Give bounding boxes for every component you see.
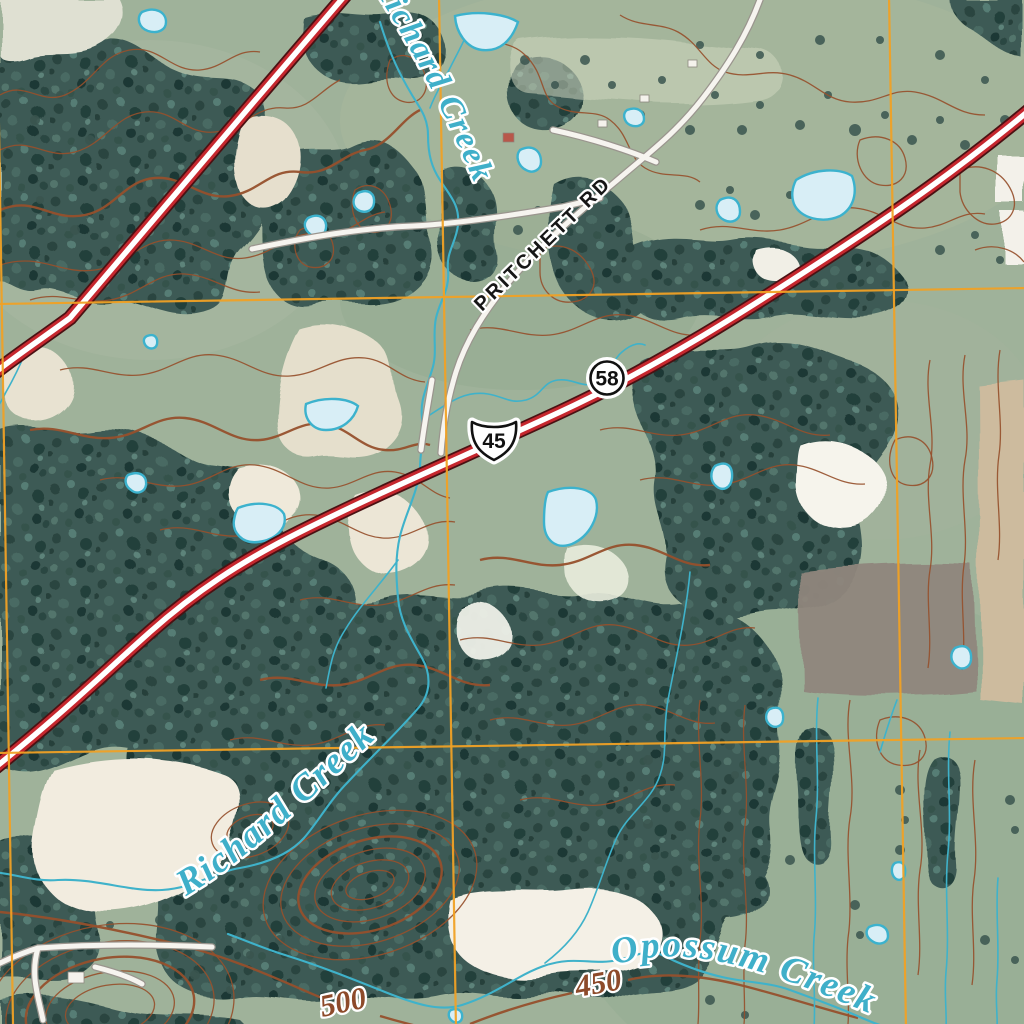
- circle-route-number: 58: [595, 368, 619, 391]
- us-route-number: 45: [482, 430, 506, 453]
- circle-route-shield-58: 58: [586, 357, 628, 399]
- us-route-shield-45: 45: [472, 422, 516, 460]
- topo-map-svg: Richard Creek Richard Creek Opossum Cree…: [0, 0, 1024, 1024]
- map-canvas[interactable]: Richard Creek Richard Creek Opossum Cree…: [0, 0, 1024, 1024]
